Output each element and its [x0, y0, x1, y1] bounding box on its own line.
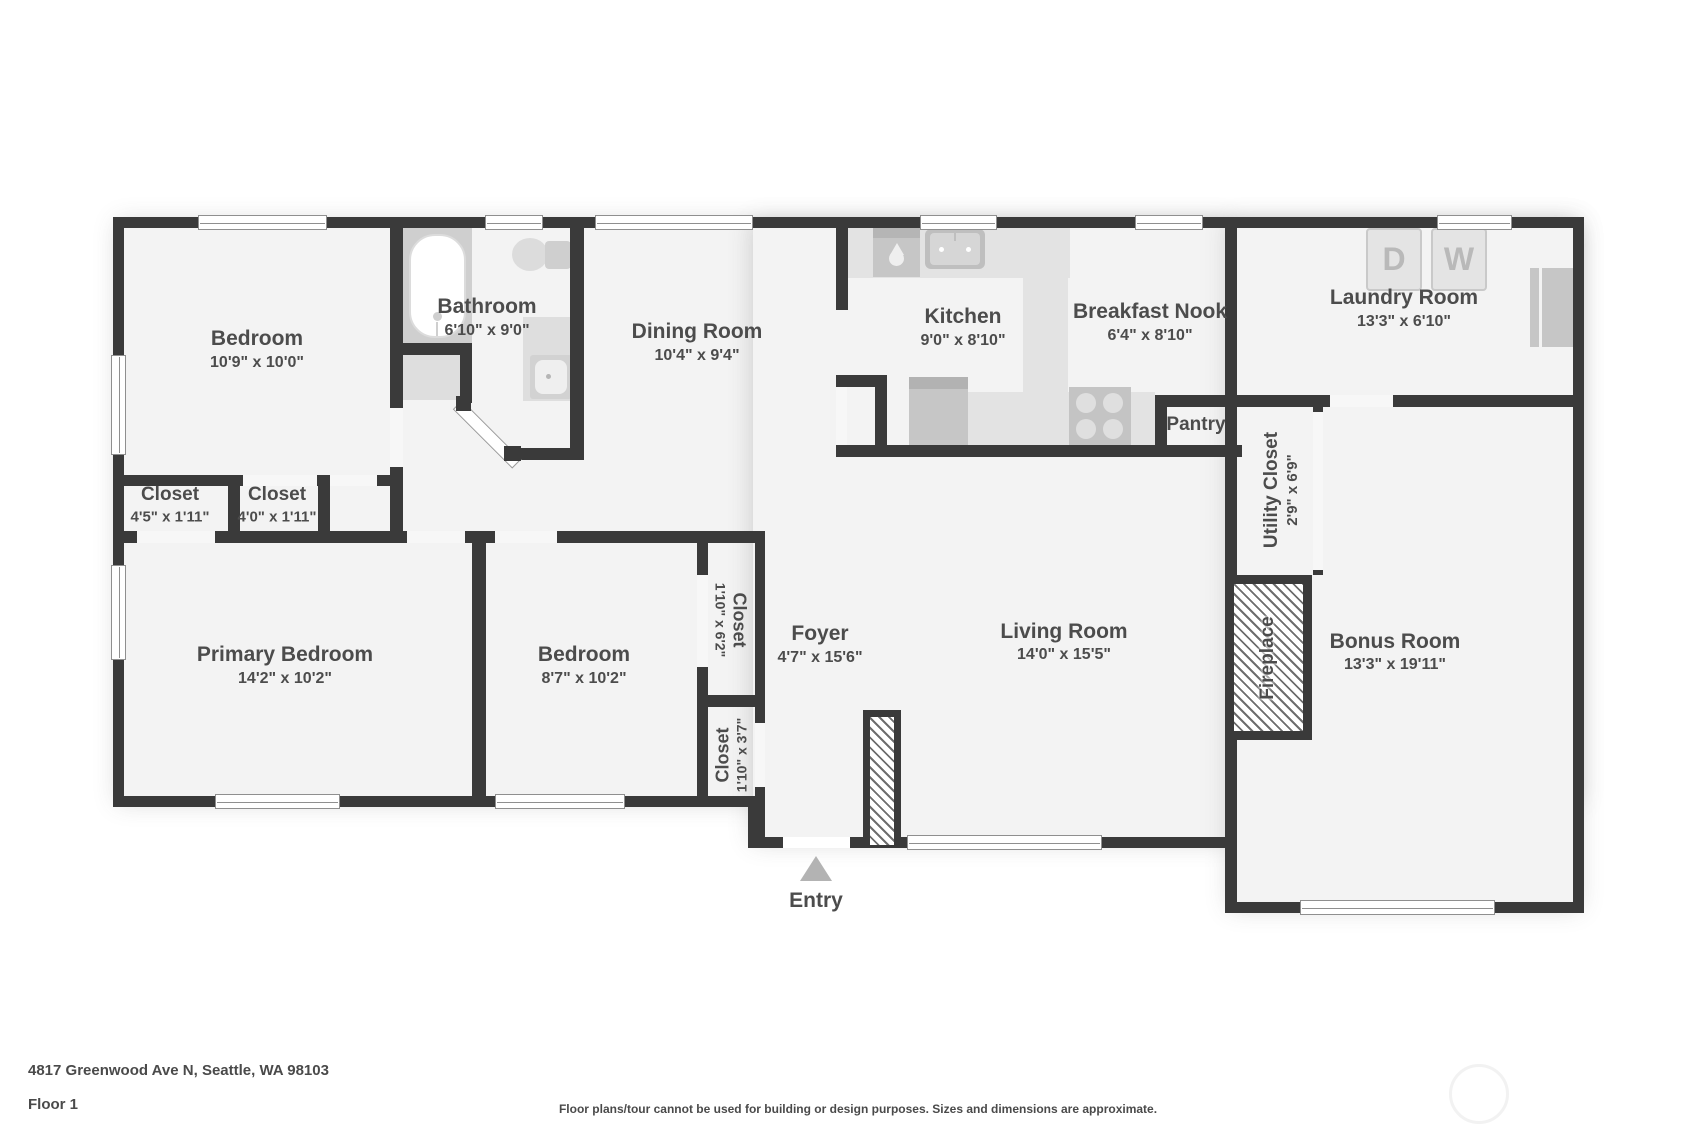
room-label-closet-hall-1: Closet: [141, 484, 199, 506]
chimney-hatch: [870, 717, 894, 845]
door-opening-bedroom1: [390, 408, 403, 467]
foyer-closet2-name: Closet: [713, 718, 734, 792]
floor-label: Floor 1: [28, 1096, 78, 1113]
kitchen-sink-divider: [954, 229, 956, 241]
kitchen-peninsula-counter: [1023, 227, 1068, 410]
room-label-laundry: Laundry Room: [1330, 286, 1478, 310]
window-bedroom1-top: [198, 215, 327, 230]
room-dims-bathroom: 6'10" x 9'0": [444, 322, 529, 340]
room-dims-living: 14'0" x 15'5": [1017, 646, 1111, 664]
washer-icon: W: [1431, 228, 1487, 291]
window-primary-bottom: [215, 794, 340, 809]
room-label-closet-hall-2: Closet: [248, 484, 306, 506]
disclaimer-text: Floor plans/tour cannot be used for buil…: [559, 1102, 1157, 1116]
window-bedroom1-left: [111, 355, 126, 455]
entry-arrow-icon: [800, 856, 832, 881]
door-opening-laundry: [1330, 395, 1393, 407]
stove-burner: [1076, 419, 1096, 439]
bathroom-sink-dot: [546, 374, 551, 379]
bathroom-floor-patch: [403, 355, 460, 400]
washer-letter: W: [1444, 241, 1474, 278]
room-label-primary: Primary Bedroom: [197, 643, 373, 667]
window-primary-left: [111, 565, 126, 660]
bathtub-drain-line: [436, 322, 438, 336]
floor-plan-page: { "fp": { "rooms": { "bedroom1": {"name"…: [0, 0, 1697, 1131]
window-bedroom2-bottom: [495, 794, 625, 809]
door-opening-kitchen: [836, 387, 847, 445]
door-opening-entry: [783, 837, 850, 848]
stove-burner: [1103, 419, 1123, 439]
room-dims-closet-hall-1: 4'5" x 1'11": [131, 509, 210, 526]
room-dims-foyer: 4'7" x 15'6": [777, 649, 862, 667]
foyer-closet1-dims: 1'10" x 6'2": [713, 583, 729, 657]
wall-left-exterior: [113, 217, 124, 807]
wall-top-exterior: [113, 217, 1584, 228]
window-dining-top: [595, 215, 753, 230]
foyer-closet1-name: Closet: [729, 583, 750, 657]
utility-dims: 2'9" x 6'9": [1284, 432, 1301, 548]
room-dims-kitchen: 9'0" x 8'10": [920, 332, 1005, 350]
room-label-bedroom1: Bedroom: [211, 327, 303, 351]
stove-icon: [1069, 387, 1131, 445]
wall-kitchen-bottom: [836, 445, 1158, 457]
room-label-bonus: Bonus Room: [1330, 630, 1461, 654]
bathroom-sink-basin: [535, 360, 567, 394]
toilet-tank-icon: [545, 241, 571, 269]
door-opening-utility: [1313, 412, 1323, 570]
dryer-icon: D: [1366, 228, 1422, 291]
room-label-foyer-closet-2: Closet 1'10" x 3'7": [713, 718, 750, 792]
fireplace-name: Fireplace: [1257, 616, 1279, 699]
room-dims-bonus: 13'3" x 19'11": [1344, 656, 1446, 674]
fridge-top-band: [909, 377, 968, 389]
wall-tub-alcove-right: [460, 343, 472, 403]
watermark-logo-icon: [1449, 1064, 1509, 1124]
wall-bathroom-bottom: [512, 448, 584, 460]
window-bonus-bottom: [1300, 900, 1495, 915]
door-opening-small-closet: [330, 475, 377, 486]
address-text: 4817 Greenwood Ave N, Seattle, WA 98103: [28, 1062, 329, 1079]
room-label-living: Living Room: [1000, 620, 1127, 644]
room-label-nook: Breakfast Nook: [1073, 300, 1227, 324]
entry-label: Entry: [789, 889, 843, 913]
bathroom-door-cap-bottom: [504, 446, 521, 461]
room-label-bedroom2: Bedroom: [538, 643, 630, 667]
window-living-bottom: [907, 835, 1102, 850]
wall-dining-left: [570, 217, 584, 460]
room-label-dining: Dining Room: [632, 320, 763, 344]
dryer-letter: D: [1382, 241, 1405, 278]
room-label-kitchen: Kitchen: [924, 305, 1001, 329]
bathroom-door-cap-top: [456, 396, 471, 411]
door-opening-closet1: [137, 531, 215, 543]
window-laundry-top: [1437, 215, 1512, 230]
wall-tub-alcove: [393, 343, 470, 355]
dishwasher-top-band: [873, 228, 920, 238]
stove-burner: [1076, 393, 1096, 413]
room-label-foyer: Foyer: [791, 622, 848, 646]
window-nook-top: [1135, 215, 1203, 230]
room-label-foyer-closet-1: Closet 1'10" x 6'2": [713, 583, 750, 657]
laundry-counter: [1542, 268, 1573, 347]
stove-burner: [1103, 393, 1123, 413]
laundry-counter-strip: [1530, 268, 1539, 347]
wall-bedroom1-right: [390, 217, 403, 543]
door-opening-primary: [407, 531, 465, 543]
door-opening-foyer-closet2: [755, 723, 765, 787]
wall-foyer-closet-divider: [697, 695, 765, 707]
room-label-pantry: Pantry: [1166, 414, 1225, 436]
kitchen-sink-dot-left: [939, 247, 944, 252]
wall-kitchen-dining-upper: [836, 217, 848, 310]
window-kitchen-top: [920, 215, 997, 230]
kitchen-sink-dot-right: [966, 247, 971, 252]
room-label-fireplace: Fireplace: [1257, 616, 1279, 699]
door-opening-bedroom2: [495, 531, 557, 543]
wall-bedroom2-left: [472, 543, 486, 807]
room-dims-bedroom1: 10'9" x 10'0": [210, 354, 304, 372]
wall-right-exterior: [1573, 217, 1584, 913]
door-opening-foyer-closet1: [697, 575, 708, 667]
room-dims-primary: 14'2" x 10'2": [238, 670, 332, 688]
room-dims-laundry: 13'3" x 6'10": [1357, 313, 1451, 331]
foyer-closet2-dims: 1'10" x 3'7": [734, 718, 750, 792]
utility-name: Utility Closet: [1261, 432, 1283, 548]
room-dims-closet-hall-2: 4'0" x 1'11": [238, 509, 317, 526]
toilet-bowl-icon: [512, 238, 548, 271]
room-label-bathroom: Bathroom: [437, 295, 536, 319]
wall-bottom-left: [113, 796, 760, 807]
water-drop-tip: [890, 243, 904, 255]
room-dims-dining: 10'4" x 9'4": [654, 347, 739, 365]
room-label-utility: Utility Closet 2'9" x 6'9": [1261, 432, 1301, 548]
window-bathroom-top: [485, 215, 543, 230]
room-dims-nook: 6'4" x 8'10": [1107, 327, 1192, 345]
room-dims-bedroom2: 8'7" x 10'2": [541, 670, 626, 688]
